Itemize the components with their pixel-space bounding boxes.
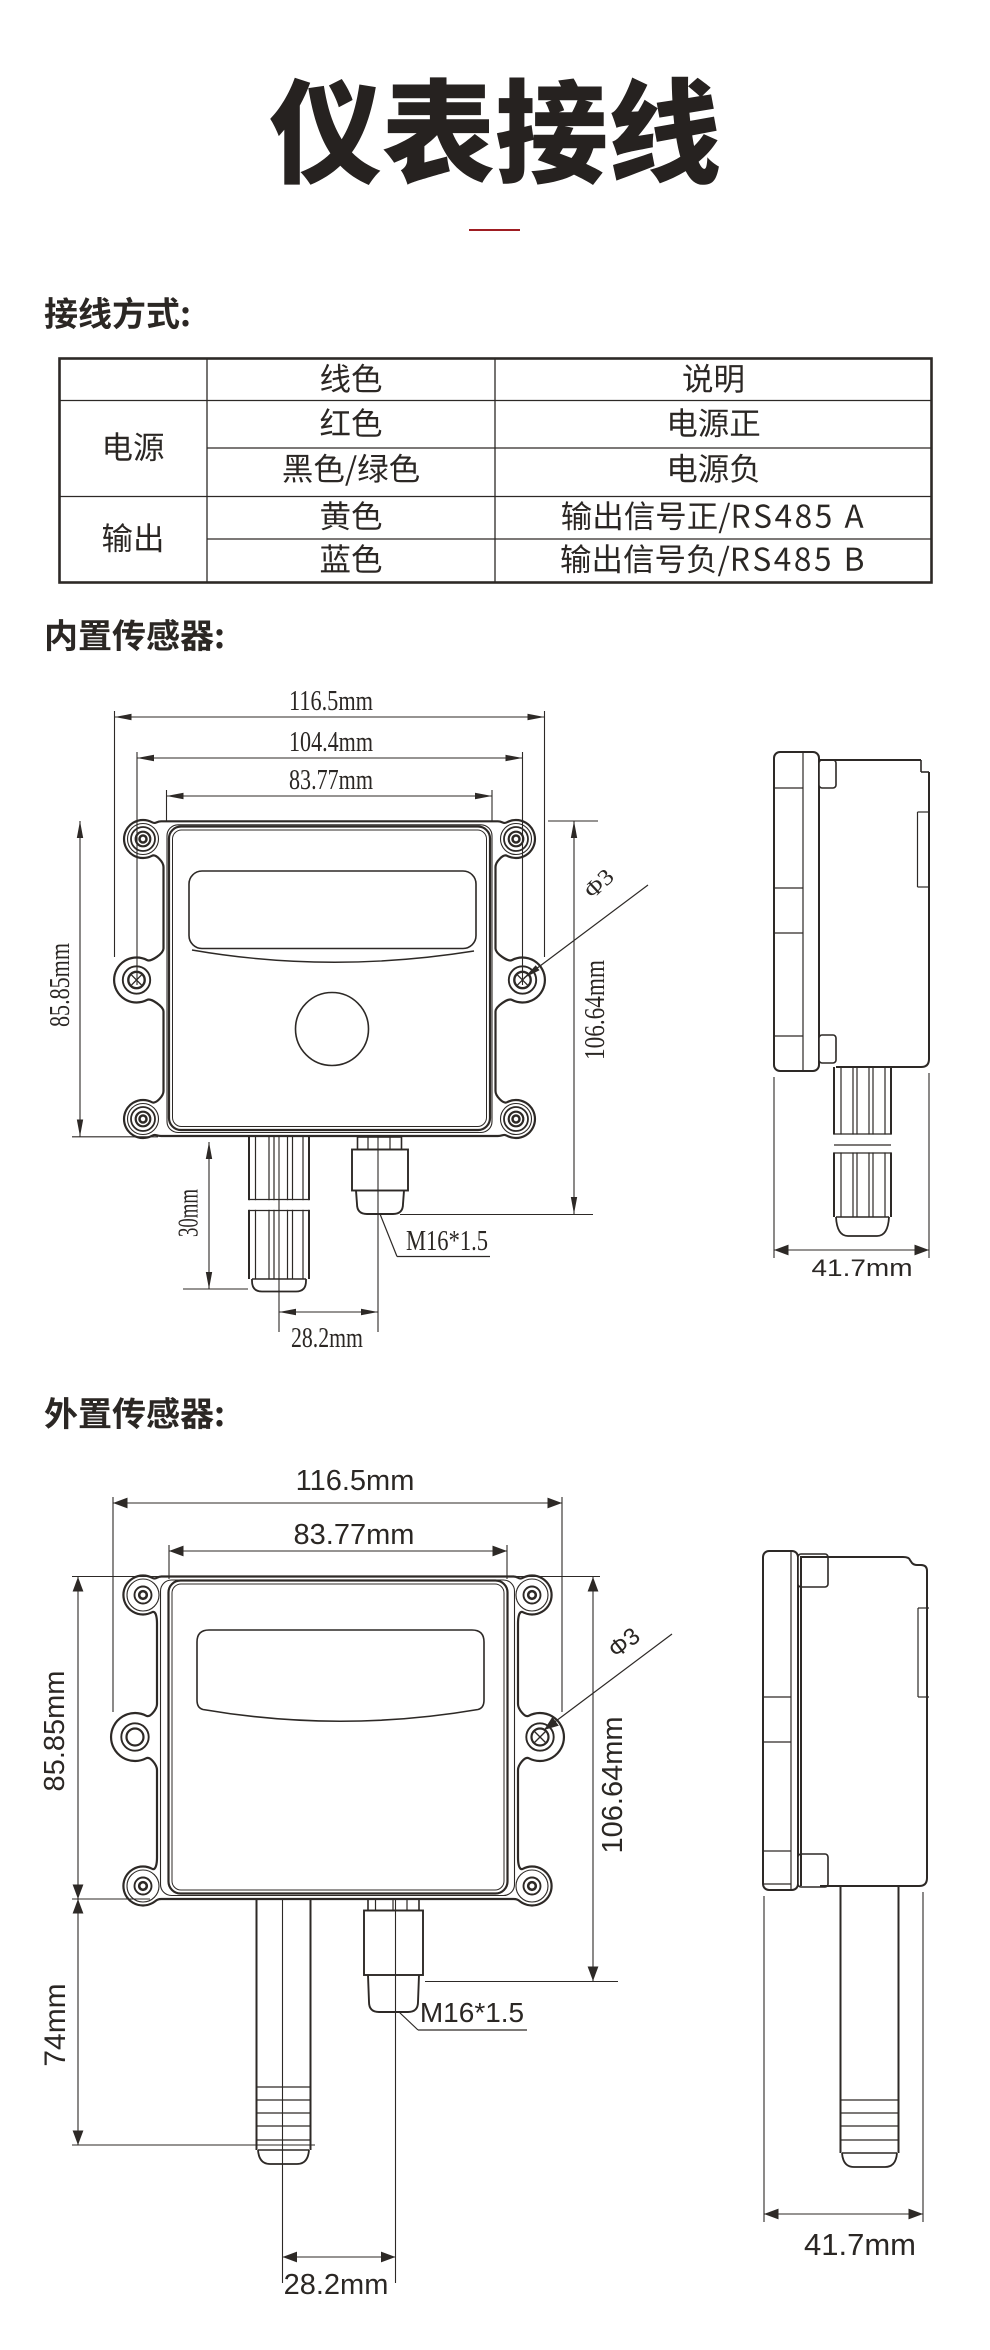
svg-text:28.2mm: 28.2mm [284, 2269, 389, 2301]
svg-text:106.64mm: 106.64mm [579, 960, 611, 1060]
svg-text:74mm: 74mm [39, 1983, 72, 2066]
svg-text:85.85mm: 85.85mm [44, 943, 76, 1027]
svg-text:106.64mm: 106.64mm [597, 1716, 629, 1853]
svg-text:83.77mm: 83.77mm [294, 1519, 415, 1551]
svg-text:Φ3: Φ3 [579, 864, 619, 903]
svg-text:28.2mm: 28.2mm [291, 1322, 363, 1354]
svg-text:116.5mm: 116.5mm [289, 685, 373, 717]
svg-text:41.7mm: 41.7mm [812, 1255, 913, 1282]
svg-text:41.7mm: 41.7mm [804, 2227, 916, 2262]
svg-text:30mm: 30mm [173, 1189, 205, 1237]
svg-text:Φ3: Φ3 [603, 1622, 645, 1663]
svg-text:83.77mm: 83.77mm [289, 764, 373, 796]
svg-text:85.85mm: 85.85mm [39, 1671, 71, 1792]
svg-text:M16*1.5: M16*1.5 [420, 1997, 524, 2028]
svg-text:104.4mm: 104.4mm [289, 726, 373, 758]
svg-text:M16*1.5: M16*1.5 [406, 1225, 488, 1257]
svg-text:116.5mm: 116.5mm [296, 1465, 415, 1497]
